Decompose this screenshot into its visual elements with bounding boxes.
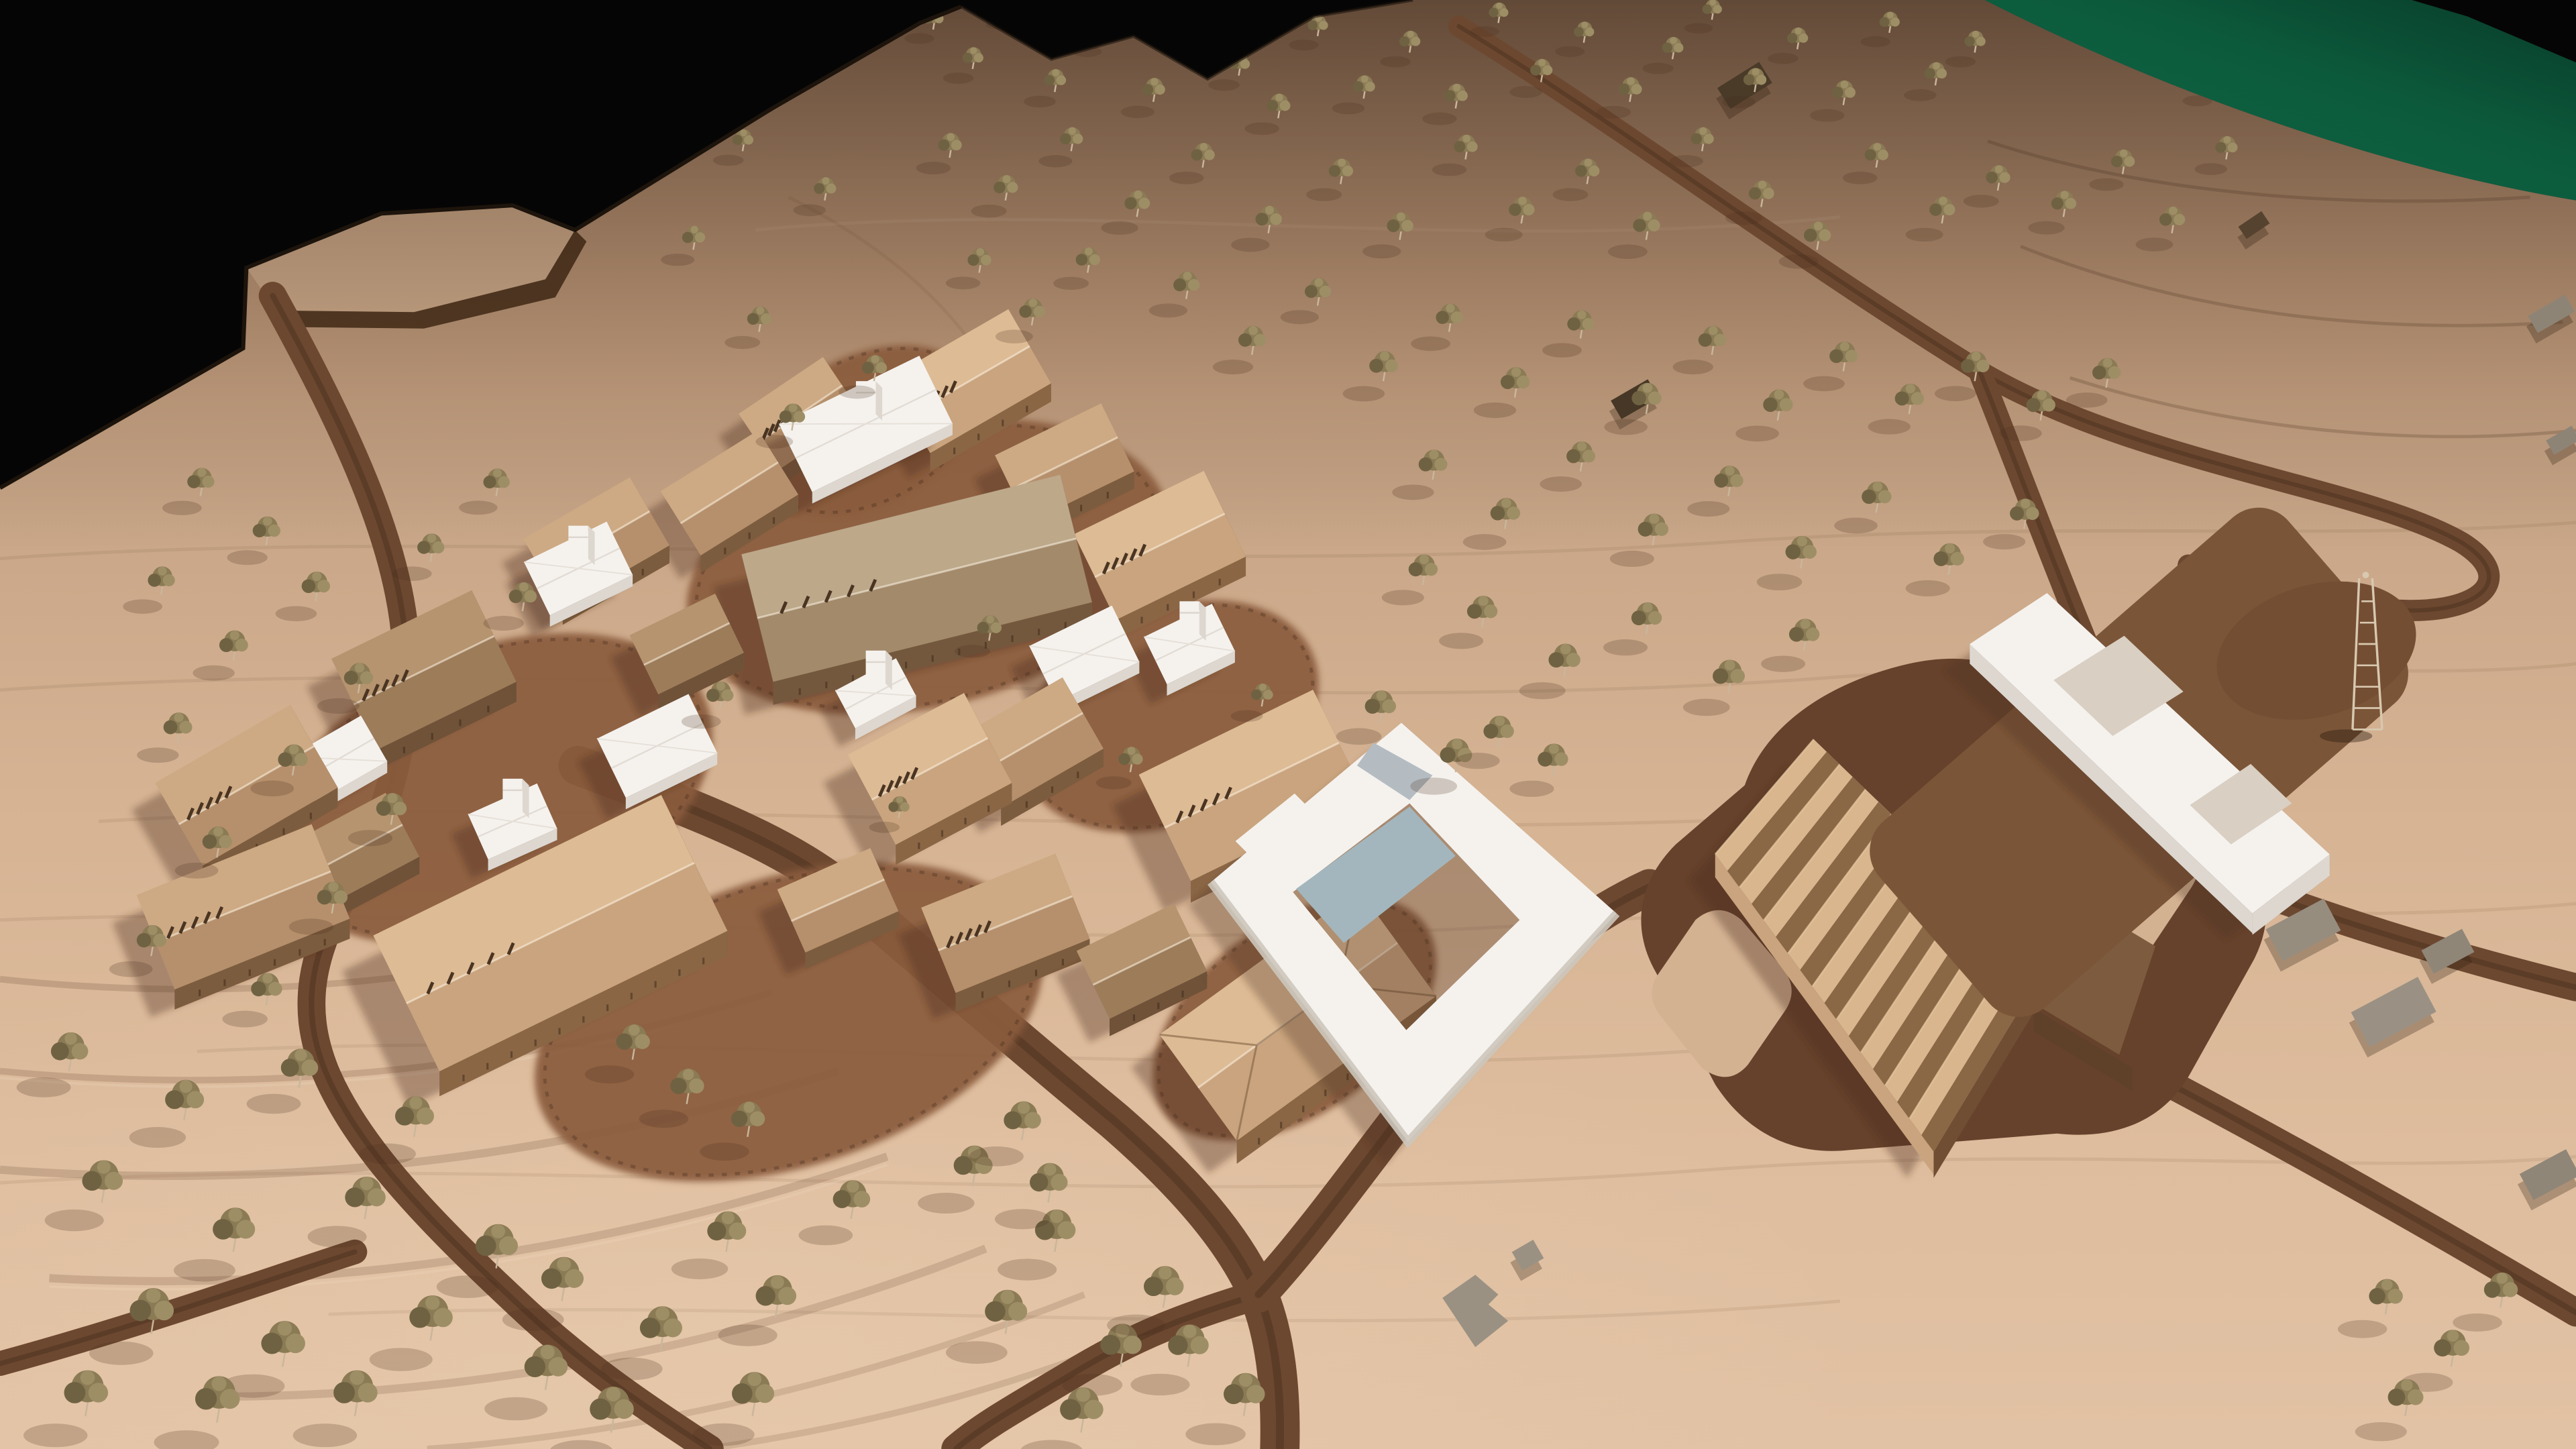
tree-foliage [278,1321,292,1336]
tree-shadow [1642,63,1673,74]
tree-foliage [1183,272,1192,280]
tree-shadow [1761,656,1805,672]
tree-foliage [164,720,178,735]
tree-foliage [1409,562,1423,576]
tree-foliage [1743,74,1755,85]
tree-shadow [1380,56,1411,68]
tree-shadow [459,500,497,515]
tree-shadow [1392,484,1434,500]
tree-shadow [755,435,793,448]
tree-shadow [1945,56,1976,68]
tree-foliage [1814,221,1823,230]
tree-foliage [1118,753,1130,765]
tree-shadow [869,822,900,833]
tree-shadow [17,1077,71,1097]
tree-shadow [1610,551,1654,567]
tree-shadow [839,386,875,399]
tree-foliage [1756,74,1766,85]
white-tower [866,651,885,684]
tree-foliage [1530,65,1541,76]
tree-foliage [1648,219,1660,231]
tree-shadow [585,1065,634,1083]
tree-shadow [946,1341,1008,1364]
tree-foliage [1618,83,1629,95]
tree-foliage [1430,450,1439,460]
tree-foliage [509,590,523,603]
tree-shadow [1169,172,1203,184]
tree-foliage [1401,220,1413,232]
tree-foliage [1939,197,1947,205]
tree-shadow [502,1308,564,1331]
tree-shadow [1597,106,1631,119]
tree-foliage [153,934,166,947]
tree-foliage [977,622,989,634]
tree-foliage [179,720,192,733]
tree-foliage [1159,1267,1172,1280]
tree-foliage [1703,133,1713,144]
tree-shadow [227,550,267,565]
tree-foliage [1019,305,1032,318]
tree-foliage [328,881,338,892]
tree-foliage [525,590,537,602]
tree-shadow [1670,155,1703,167]
tree-foliage [1511,368,1521,377]
tree-foliage [690,226,698,233]
tree-shadow [1432,164,1466,176]
tree-foliage [761,313,771,324]
tree-foliage [2381,1279,2393,1291]
tree-foliage [744,136,753,145]
tree-foliage [1585,28,1595,37]
white-frame [779,423,952,424]
tree-foliage [1840,341,1849,351]
tree-foliage [1584,159,1592,167]
tree-foliage [1307,20,1318,30]
tree-shadow [1673,360,1713,374]
tree-foliage [312,572,321,581]
tree-foliage [1263,690,1273,700]
tree-foliage [395,1107,414,1126]
tree-foliage [268,525,280,537]
tree-foliage [981,255,991,266]
tree-foliage [565,1269,584,1288]
tree-foliage [683,1069,694,1080]
tree-shadow [137,747,178,763]
tree-shadow [1861,36,1890,47]
tree-foliage [1305,285,1318,298]
tree-shadow [129,1127,186,1148]
tree-foliage [967,254,979,266]
tree-shadow [1410,777,1457,795]
tree-shadow [693,1424,755,1446]
tree-foliage [525,1356,545,1377]
tree-foliage [900,802,910,812]
tree-foliage [871,355,879,363]
tree-foliage [158,567,166,576]
tree-foliage [1352,81,1363,92]
tree-foliage [1365,82,1375,92]
tree-shadow [1053,277,1089,290]
tree-foliage [1690,133,1702,145]
tree-foliage [740,129,747,136]
tree-foliage [1758,180,1766,189]
tree-foliage [187,475,201,488]
tree-shadow [682,714,721,729]
tree-foliage [2010,506,2024,521]
tree-foliage [1933,62,1940,70]
tree-foliage [294,753,308,766]
tree-foliage [1018,1102,1030,1114]
tree-shadow [1757,574,1803,590]
tree-shadow [1735,425,1779,441]
tree-foliage [732,1383,753,1404]
tree-foliage [1150,78,1158,85]
tree-foliage [1044,1163,1057,1176]
tree-foliage [1462,135,1470,143]
tree-foliage [1631,84,1642,95]
tree-foliage [360,1177,374,1190]
tree-foliage [951,140,962,150]
tree-foliage [186,1091,204,1108]
tree-foliage [1050,1210,1063,1223]
tree-foliage [635,1034,650,1049]
tree-shadow [1555,46,1585,57]
tree-foliage [1444,90,1456,101]
tree-shadow [317,698,360,714]
tree-foliage [716,682,725,690]
tree-shadow [1906,228,1943,241]
tree-foliage [707,1222,726,1240]
tree-foliage [1749,187,1761,199]
tree-foliage [557,1257,571,1271]
tree-foliage [317,580,330,592]
tree-shadow [2453,1313,2502,1332]
tree-shadow [348,830,392,846]
tree-foliage [1829,350,1843,364]
tree-shadow [437,1275,498,1298]
tree-foliage [974,53,983,62]
tree-foliage [82,1171,101,1191]
tree-shadow [1519,682,1566,699]
tree-foliage [1076,1387,1090,1401]
tree-foliage [689,1079,704,1094]
tree-foliage [2169,207,2178,215]
tree-foliage [747,313,759,325]
tree-foliage [1251,690,1262,700]
tree-foliage [1929,203,1942,216]
tree-foliage [1173,278,1186,291]
tree-foliage [1056,75,1066,85]
tree-foliage [1369,359,1383,373]
tree-foliage [203,835,217,849]
tree-foliage [1731,669,1745,683]
tree-foliage [2387,1289,2403,1304]
tree-foliage [1499,8,1508,17]
tree-shadow [1208,79,1240,91]
tree-foliage [1003,175,1011,183]
tree-foliage [129,1300,151,1322]
tree-shadow [1306,188,1342,201]
tree-foliage [1574,27,1584,37]
tree-foliage [1030,1173,1048,1191]
tree-foliage [1052,69,1059,76]
tree-foliage [629,1024,640,1036]
tree-foliage [2228,142,2238,152]
white-tower [1179,601,1199,634]
tree-foliage [616,1033,632,1049]
tree-foliage [1873,482,1883,492]
tree-shadow [1121,106,1155,118]
tree-shadow [247,1094,301,1114]
tree-foliage [498,476,510,488]
tree-foliage [2103,358,2112,368]
tree-shadow [700,1142,749,1161]
tree-foliage [1265,206,1274,215]
tree-foliage [1567,317,1580,331]
tree-foliage [755,1384,774,1403]
tree-foliage [261,1333,282,1354]
tree-shadow [1603,639,1648,655]
tree-shadow [916,162,951,174]
tree-foliage [1280,101,1291,111]
tree-shadow [955,645,990,657]
tree-foliage [148,574,161,587]
tree-shadow [1553,188,1589,201]
tree-foliage [991,623,1002,633]
tree-foliage [2026,507,2039,520]
tree-shadow [392,566,432,581]
tree-foliage [2453,1340,2469,1356]
tree-foliage [230,631,239,640]
tree-foliage [344,671,358,685]
tree-foliage [640,1318,661,1338]
tree-foliage [1538,59,1546,66]
tree-foliage [1387,219,1399,232]
tree-foliage [1878,490,1892,503]
tree-foliage [1943,204,1955,215]
tree-foliage [1699,333,1712,347]
tree-foliage [1548,652,1564,667]
tree-foliage [614,1399,633,1419]
tree-foliage [1806,627,1819,641]
tower-top [2363,572,2369,578]
tree-foliage [721,689,733,701]
tree-foliage [862,362,874,374]
tree-shadow [1231,710,1263,722]
tree-shadow [996,329,1033,343]
tree-foliage [1797,536,1807,546]
tree-foliage [1699,127,1707,135]
tree-foliage [1845,350,1858,362]
tree-shadow [1245,122,1279,135]
tree-foliage [947,133,955,141]
tree-foliage [1566,653,1580,667]
tree-shadow [1185,1423,1246,1445]
tree-foliage [1862,490,1876,504]
tree-foliage [197,468,206,477]
tree-foliage [1995,165,2003,173]
tree-foliage [1267,100,1278,111]
tree-shadow [995,1209,1050,1229]
tree-foliage [294,1049,307,1061]
tree-foliage [148,925,158,935]
tree-shadow [971,205,1007,217]
tree-shadow [2089,178,2123,191]
tree-foliage [493,469,502,478]
tree-foliage [1124,197,1136,209]
tree-foliage [986,615,994,623]
tree-foliage [1674,43,1683,52]
tree-foliage [368,1188,386,1206]
tree-foliage [1648,392,1662,405]
tree-foliage [1582,318,1595,330]
tree-shadow [1101,221,1138,235]
tree-foliage [358,1383,377,1402]
tree-foliage [1662,42,1672,52]
tree-foliage [2124,156,2135,167]
tree-foliage [1801,619,1811,629]
tree-foliage [1007,182,1018,193]
tree-foliage [1730,474,1743,487]
tree-foliage [1224,1384,1244,1404]
tree-foliage [1467,604,1482,619]
tree-foliage [1496,3,1503,9]
tree-foliage [733,135,743,145]
tree-foliage [729,1222,746,1240]
tree-foliage [1060,133,1071,145]
tree-foliage [235,639,248,651]
tree-foliage [1887,12,1894,19]
tree-foliage [1191,1336,1209,1354]
tree-foliage [1411,37,1420,46]
tree-shadow [2000,425,2042,441]
tree-foliage [1703,5,1712,14]
tree-foliage [1549,744,1559,754]
tree-shadow [1463,534,1507,550]
tree-foliage [1073,133,1083,144]
tree-foliage [1582,449,1595,462]
tree-foliage [2223,136,2231,144]
tree-foliage [1419,458,1433,472]
tree-foliage [1581,21,1588,28]
tree-foliage [826,184,837,194]
tree-foliage [236,1220,255,1238]
tree-foliage [286,1334,305,1353]
tree-foliage [105,1172,123,1190]
tree-foliage [1890,17,1900,27]
tree-shadow [1336,728,1382,745]
tree-foliage [1670,37,1676,44]
tree-foliage [1084,1400,1104,1419]
tree-foliage [301,1059,318,1076]
tree-foliage [731,1111,747,1127]
tree-foliage [317,890,332,904]
tree-foliage [2496,1273,2508,1284]
tree-shadow [484,616,524,631]
tree-foliage [1248,326,1258,335]
tree-foliage [1338,159,1346,167]
tree-shadow [998,1258,1057,1280]
tree-foliage [1633,219,1646,232]
tree-shadow [1843,172,1877,184]
tree-foliage [1399,36,1409,46]
tree-foliage [954,1156,973,1175]
tree-foliage [1200,143,1208,151]
tree-foliage [1945,543,1955,553]
tree-foliage [1804,229,1817,242]
tree-foliage [345,1187,364,1207]
tree-foliage [262,973,272,983]
tree-foliage [1467,142,1478,152]
tree-foliage [220,1389,240,1409]
tree-foliage [1453,84,1461,92]
tree-foliage [1183,1325,1197,1338]
tree-foliage [976,248,984,256]
tree-shadow [2136,237,2173,251]
tree-foliage [1452,739,1462,749]
tree-foliage [875,362,887,374]
tree-foliage [1964,36,1974,46]
tree-foliage [1004,1111,1022,1129]
tree-shadow [1683,699,1730,716]
tree-foliage [1446,304,1454,313]
tree-foliage [743,1102,755,1113]
tower-side [885,651,892,690]
tower-side [588,526,595,566]
tree-foliage [2037,390,2047,400]
tree-shadow [45,1210,104,1231]
tree-shadow [794,204,826,216]
tree-foliage [1501,375,1515,389]
tree-foliage [1168,1336,1187,1355]
tree-foliage [1407,31,1414,38]
tree-foliage [1044,75,1055,86]
white-tower [502,779,522,812]
tree-foliage [853,1191,870,1207]
tree-foliage [1725,660,1735,671]
tree-shadow [1470,26,1499,37]
tree-foliage [174,712,183,722]
tree-foliage [1566,449,1580,464]
tree-foliage [1319,21,1328,30]
tree-foliage [822,177,830,184]
tree-foliage [814,183,824,194]
tree-foliage [1361,75,1368,83]
tree-foliage [1457,91,1468,101]
tree-foliage [1895,391,1909,405]
tree-shadow [1332,103,1364,115]
tree-foliage [938,140,949,151]
tree-foliage [89,1383,108,1402]
tree-foliage [1034,306,1045,317]
tree-foliage [1577,311,1586,319]
tree-foliage [1906,384,1915,393]
tree-foliage [1972,352,1981,361]
tree-foliage [1259,684,1267,691]
tree-foliage [1972,31,1979,38]
tree-foliage [1365,699,1381,714]
tree-foliage [146,1288,161,1303]
tree-shadow [1485,228,1523,241]
tree-foliage [888,802,898,812]
tree-foliage [213,826,223,837]
tree-foliage [756,1286,775,1305]
tree-foliage [409,1307,430,1328]
tree-foliage [789,404,798,413]
tree-foliage [1100,1335,1120,1355]
tree-foliage [1789,627,1804,642]
tree-shadow [2028,221,2064,235]
